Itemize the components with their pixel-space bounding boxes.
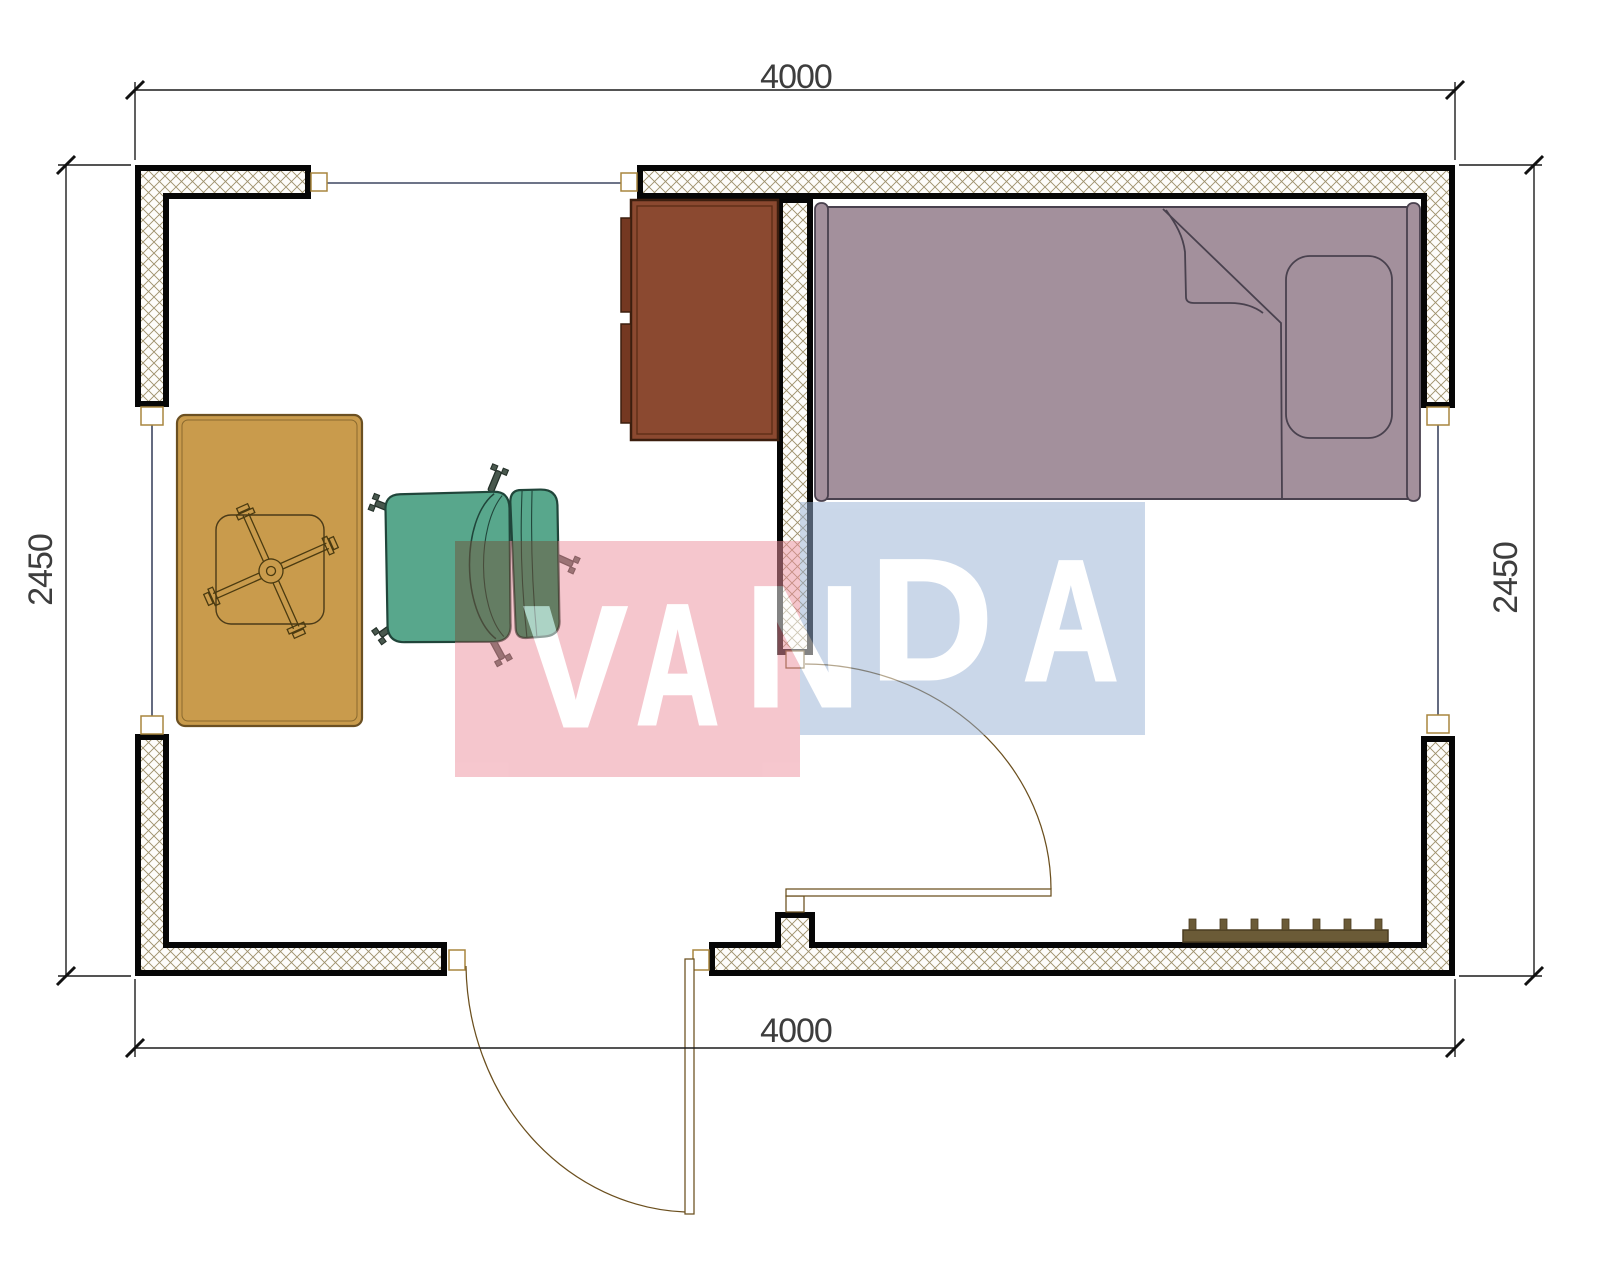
svg-text:2450: 2450 (22, 534, 60, 606)
svg-text:2450: 2450 (1487, 542, 1525, 614)
svg-text:D: D (870, 524, 993, 716)
svg-text:N: N (745, 552, 861, 744)
svg-text:A: A (636, 569, 719, 762)
svg-text:4000: 4000 (760, 1012, 832, 1050)
svg-text:4000: 4000 (760, 58, 832, 96)
svg-text:A: A (1023, 524, 1119, 717)
svg-text:V: V (524, 570, 627, 762)
